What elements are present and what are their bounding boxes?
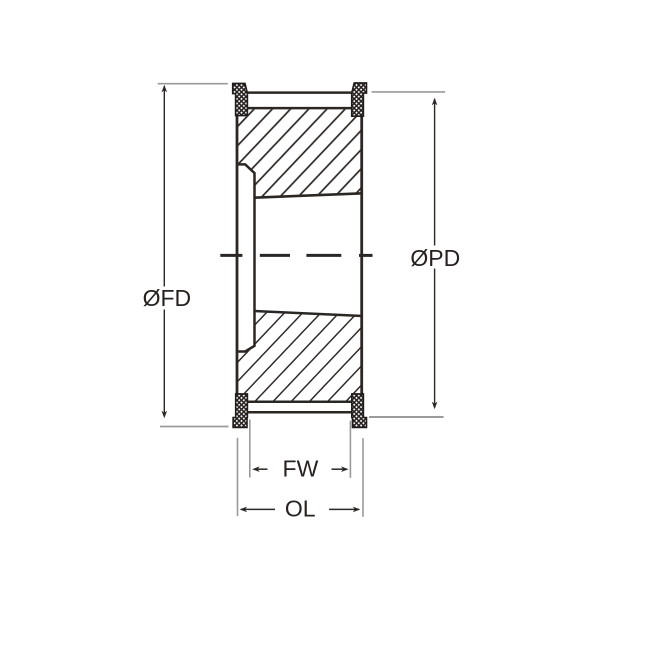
svg-text:ØPD: ØPD [410,245,460,271]
svg-text:ØFD: ØFD [143,285,192,311]
svg-text:FW: FW [283,455,319,481]
svg-text:OL: OL [285,496,316,522]
